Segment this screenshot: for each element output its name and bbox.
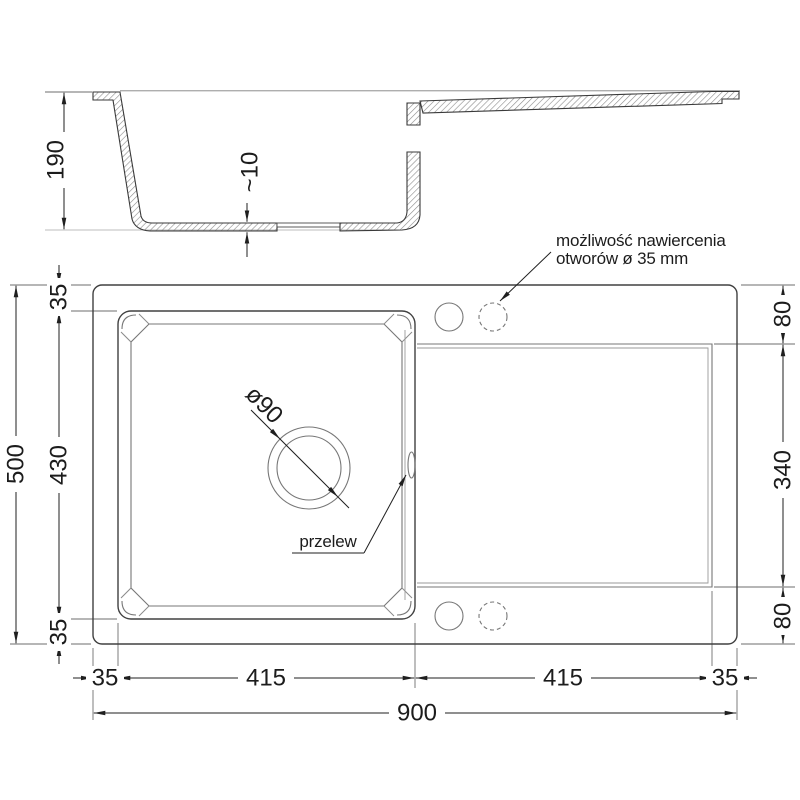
dim-section-height: 190 <box>43 92 93 229</box>
dim-label-drainer-width: 415 <box>543 665 583 692</box>
dim-label-overall-depth: 500 <box>3 444 30 484</box>
dim-label-drain-diameter: ø90 <box>240 381 288 429</box>
bowl-corner-arc-bl <box>122 601 136 615</box>
overflow-leader <box>364 475 406 553</box>
bowl-corner-arc-tl <box>122 315 136 329</box>
drain: ø90 <box>240 381 350 509</box>
bowl <box>118 311 415 619</box>
dim-label-bottom-right-margin: 35 <box>712 665 739 692</box>
section-drainer-profile <box>420 92 739 114</box>
dim-bottom-thickness: ~10 <box>237 141 264 257</box>
bowl-outer-edge <box>118 311 415 619</box>
dim-label-bottom-left-margin: 35 <box>92 665 119 692</box>
dim-label-left-middle: 430 <box>46 445 73 485</box>
dim-label-bottom-thickness: ~10 <box>237 152 264 193</box>
dim-label-overall-width: 900 <box>397 700 437 727</box>
section-bottom-right-profile <box>340 152 420 231</box>
dim-label-left-bottom: 35 <box>46 619 73 646</box>
bowl-corner-arc-tr <box>397 315 411 329</box>
dim-label-section-height: 190 <box>43 140 70 180</box>
tap-hole-top <box>435 303 463 331</box>
dim-right-chain: 80 340 80 <box>770 286 797 643</box>
dim-overall-width: 900 <box>94 700 736 727</box>
drill-note-line1: możliwość nawiercenia <box>556 231 726 250</box>
dim-label-right-top: 80 <box>770 301 797 328</box>
overflow-slot <box>408 452 415 478</box>
overflow-label: przelew <box>299 532 357 551</box>
tap-hole-bottom <box>435 602 463 630</box>
dim-label-left-top: 35 <box>46 284 73 311</box>
bowl-corner-arc-br <box>397 601 411 615</box>
bowl-corner-facets <box>121 314 412 616</box>
drainer-outer-edge <box>417 344 712 587</box>
dim-label-right-middle: 340 <box>770 450 797 490</box>
drainer <box>417 344 712 587</box>
drainer-inner-edge <box>417 348 708 583</box>
dim-left-chain: 35 430 35 <box>46 265 73 664</box>
faucet-holes <box>435 303 507 630</box>
plan-view: ø90 przelew możliwość nawiercenia otworó… <box>3 231 797 727</box>
section-wall-above-overflow <box>407 103 420 125</box>
dim-overall-depth: 500 <box>3 286 30 643</box>
drill-note: możliwość nawiercenia otworów ø 35 mm <box>500 231 726 301</box>
overflow: przelew <box>292 452 415 553</box>
dim-label-bowl-width: 415 <box>246 665 286 692</box>
section-drain-recess <box>277 223 340 227</box>
sink-technical-drawing: 190 ~10 <box>0 0 800 800</box>
optional-hole-bottom <box>479 602 507 630</box>
sink-technical-drawing-page: 190 ~10 <box>0 0 800 800</box>
drill-note-leader <box>500 252 551 301</box>
optional-hole-top <box>479 303 507 331</box>
dim-label-right-bottom: 80 <box>770 603 797 630</box>
bowl-inner-edge <box>131 324 402 606</box>
drill-note-line2: otworów ø 35 mm <box>556 249 688 268</box>
